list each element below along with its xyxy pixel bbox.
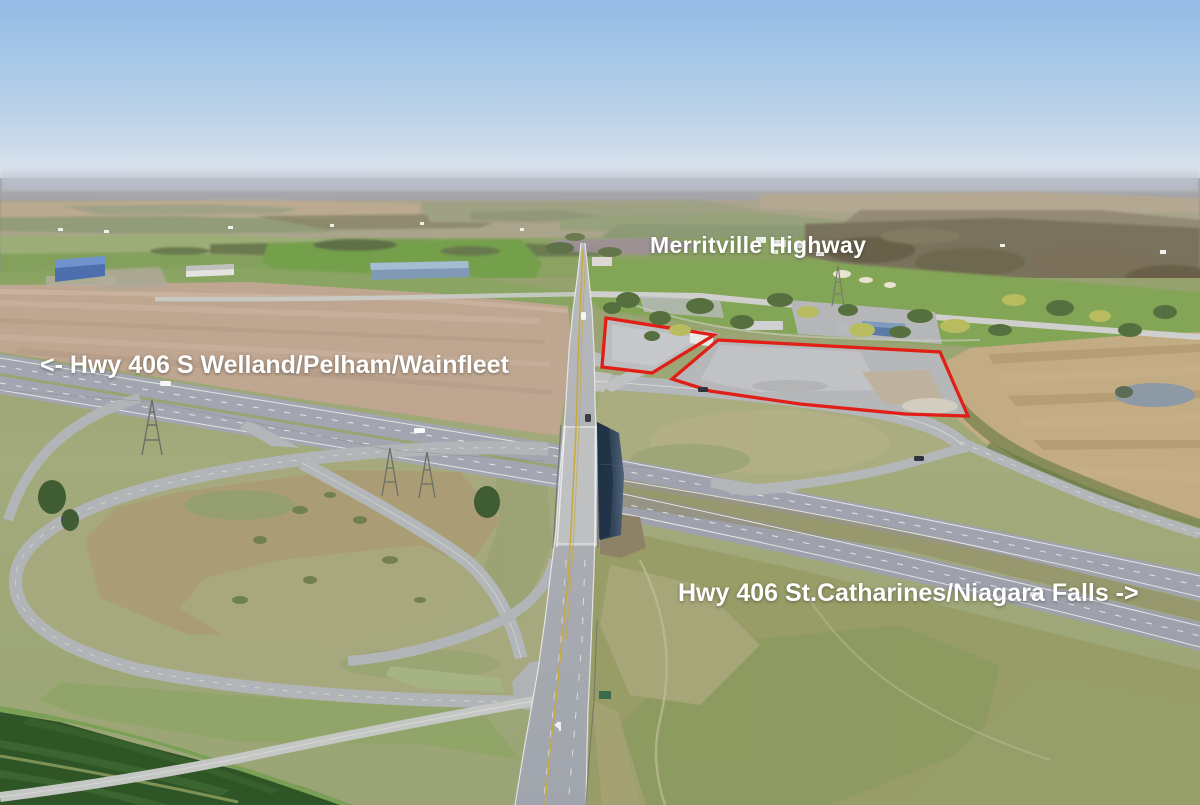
svg-text:Hwy 406 St.Catharines/Niagara: Hwy 406 St.Catharines/Niagara Falls -> [678, 579, 1139, 607]
svg-text:<- Hwy 406 S Welland/Pelham/Wa: <- Hwy 406 S Welland/Pelham/Wainfleet [40, 351, 510, 379]
svg-text:Merritville Highway: Merritville Highway [650, 232, 866, 258]
